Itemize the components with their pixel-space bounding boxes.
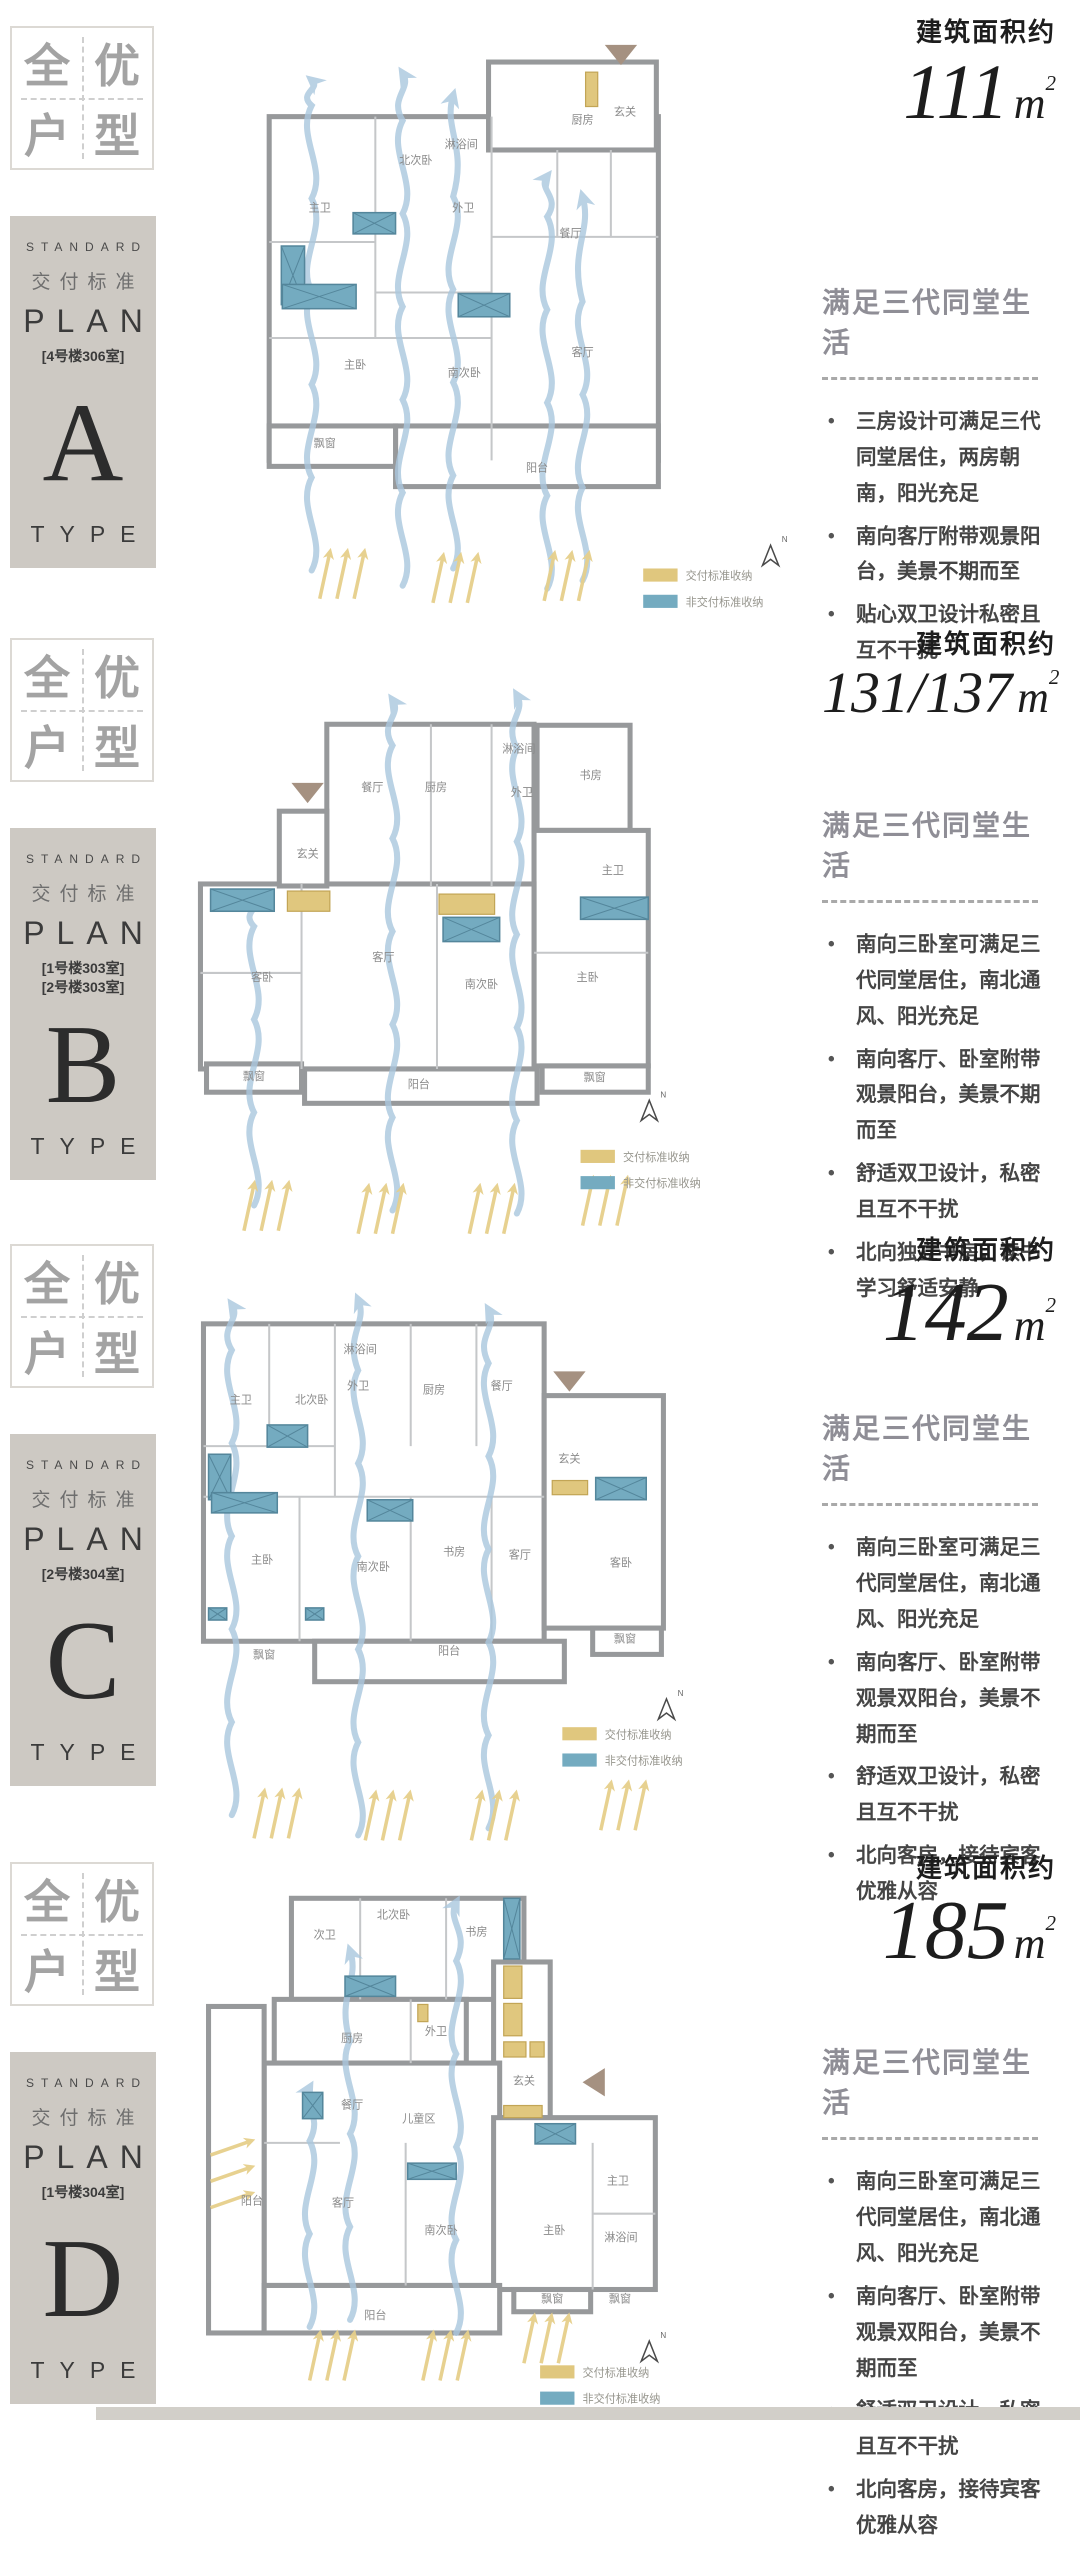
standard-label: STANDARD xyxy=(19,240,147,254)
floor-plan-svg: 次卫北次卧书房厨房外卫玄关餐厅儿童区客厅南次卧主卧主卫淋浴间阳台阳台飘窗飘窗N交… xyxy=(158,1836,810,2551)
section-headline: 满足三代同堂生活 xyxy=(822,2041,1056,2121)
info-column: 建筑面积约 185m2 满足三代同堂生活 南向三卧室可满足三代同堂居住，南北通风… xyxy=(810,1836,1080,2551)
type-label: TYPE xyxy=(15,1133,150,1160)
room-label: 阳台 xyxy=(438,1643,460,1657)
room-number: [2号楼304室] xyxy=(42,1565,124,1584)
area-block: 建筑面积约 111m2 xyxy=(822,12,1056,133)
room-label: 主卧 xyxy=(344,358,366,371)
plan-label: PLAN xyxy=(11,915,155,952)
legend-not-delivered-label: 非交付标准收纳 xyxy=(583,2392,661,2406)
area-number: 142 xyxy=(883,1266,1009,1359)
type-letter: C xyxy=(46,1605,121,1717)
floor-plan-svg: 餐厅厨房淋浴间外卫书房玄关客卧客厅南次卧主卧主卫阳台飘窗飘窗N交付标准收纳非交付… xyxy=(158,612,810,1314)
badge-char: 户 xyxy=(12,710,82,780)
left-column: 全优户型 STANDARD 交付标准 PLAN [1号楼303室][2号楼303… xyxy=(0,612,158,1314)
room-label: 淋浴间 xyxy=(604,2231,637,2244)
room-number: [1号楼303室] xyxy=(42,959,124,978)
delivery-standard-label: 交付标准 xyxy=(22,2103,143,2130)
dashed-divider xyxy=(822,377,1038,380)
delivery-standard-label: 交付标准 xyxy=(22,1485,143,1512)
svg-text:N: N xyxy=(660,1090,666,1099)
floor-plan-area: 主卫北次卧淋浴间外卫厨房餐厅玄关主卧南次卧书房客厅客卧阳台飘窗飘窗N交付标准收纳… xyxy=(158,1218,810,1917)
room-label: 阳台 xyxy=(241,2194,263,2208)
room-number: [4号楼306室] xyxy=(42,347,124,366)
entry-marker-icon xyxy=(291,783,323,803)
section-headline: 满足三代同堂生活 xyxy=(822,1407,1056,1487)
area-block: 建筑面积约 142m2 xyxy=(822,1230,1056,1357)
svg-text:N: N xyxy=(782,535,788,544)
north-arrow-icon: N xyxy=(658,1689,683,1719)
room-label: 玄关 xyxy=(513,2073,535,2087)
feature-bullet: 舒适双卫设计，私密且互不干扰 xyxy=(822,1759,1056,1831)
room-label: 主卫 xyxy=(309,202,331,215)
unit-section-B: 全优户型 STANDARD 交付标准 PLAN [1号楼303室][2号楼303… xyxy=(0,612,1080,1218)
room-label: 餐厅 xyxy=(491,1379,513,1393)
plan-standard-block: STANDARD 交付标准 PLAN [4号楼306室] A TYPE xyxy=(10,216,156,568)
room-label: 餐厅 xyxy=(361,780,383,794)
room-label: 北次卧 xyxy=(399,153,432,167)
room-label: 阳台 xyxy=(526,460,548,474)
room-label: 飘窗 xyxy=(541,2292,563,2306)
room-label: 书房 xyxy=(580,769,602,782)
feature-bullet: 南向客厅、卧室附带观景双阳台，美景不期而至 xyxy=(822,2279,1056,2387)
info-column: 建筑面积约 142m2 满足三代同堂生活 南向三卧室可满足三代同堂居住，南北通风… xyxy=(810,1218,1080,1917)
room-label: 淋浴间 xyxy=(502,743,535,756)
legend-not-delivered-label: 非交付标准收纳 xyxy=(623,1176,701,1190)
standard-label: STANDARD xyxy=(19,852,147,866)
feature-bullet: 北向客房，接待宾客优雅从容 xyxy=(822,2472,1056,2544)
room-number: [2号楼303室] xyxy=(42,978,124,997)
floor-plan-area: 次卫北次卧书房厨房外卫玄关餐厅儿童区客厅南次卧主卧主卫淋浴间阳台阳台飘窗飘窗N交… xyxy=(158,1836,810,2551)
room-label: 玄关 xyxy=(614,105,636,119)
room-label: 厨房 xyxy=(423,1384,445,1397)
legend-delivered-swatch xyxy=(562,1727,596,1740)
type-label: TYPE xyxy=(15,1739,150,1766)
north-arrow-icon: N xyxy=(641,2331,666,2361)
floor-plan-area: 餐厅厨房淋浴间外卫书房玄关客卧客厅南次卧主卧主卫阳台飘窗飘窗N交付标准收纳非交付… xyxy=(158,612,810,1314)
badge-char: 优 xyxy=(82,1864,152,1934)
area-value: 142m2 xyxy=(822,1269,1056,1357)
room-label: 主卧 xyxy=(577,971,599,984)
room-label: 北次卧 xyxy=(295,1393,328,1407)
dashed-divider xyxy=(822,2137,1038,2140)
plan-label: PLAN xyxy=(11,303,155,340)
feature-bullet: 南向三卧室可满足三代同堂居住，南北通风、阳光充足 xyxy=(822,2164,1056,2272)
feature-bullet: 舒适双卫设计，私密且互不干扰 xyxy=(822,2393,1056,2465)
badge-char: 优 xyxy=(82,28,152,98)
area-block: 建筑面积约 131/137m2 xyxy=(822,624,1056,724)
room-label: 外卫 xyxy=(452,202,474,215)
room-label: 餐厅 xyxy=(559,226,581,240)
badge-char: 户 xyxy=(12,1934,82,2004)
badge-char: 型 xyxy=(82,710,152,780)
section-headline: 满足三代同堂生活 xyxy=(822,804,1056,884)
room-label: 南次卧 xyxy=(448,365,481,379)
room-label: 厨房 xyxy=(341,2032,363,2045)
plan-standard-block: STANDARD 交付标准 PLAN [1号楼304室] D TYPE xyxy=(10,2052,156,2404)
plan-label: PLAN xyxy=(11,2139,155,2176)
quality-badge: 全优户型 xyxy=(10,1862,154,2006)
type-letter: D xyxy=(43,2223,124,2335)
north-arrow-icon: N xyxy=(641,1090,666,1120)
feature-bullet: 三房设计可满足三代同堂居住，两房朝南，阳光充足 xyxy=(822,404,1056,512)
room-label: 飘窗 xyxy=(584,1070,606,1084)
dashed-divider xyxy=(822,1503,1038,1506)
room-number-list: [1号楼303室][2号楼303室] xyxy=(42,959,124,997)
plan-standard-block: STANDARD 交付标准 PLAN [2号楼304室] C TYPE xyxy=(10,1434,156,1786)
floor-plan-svg: 主卫北次卧淋浴间外卫厨房餐厅玄关主卧南次卧书房客厅客卧阳台飘窗飘窗N交付标准收纳… xyxy=(158,1218,810,1917)
room-label: 客卧 xyxy=(610,1555,632,1569)
room-label: 飘窗 xyxy=(243,1069,265,1083)
room-label: 餐厅 xyxy=(341,2098,363,2112)
unit-section-D: 全优户型 STANDARD 交付标准 PLAN [1号楼304室] D TYPE… xyxy=(0,1836,1080,2420)
svg-text:N: N xyxy=(678,1689,684,1698)
legend-delivered-label: 交付标准收纳 xyxy=(583,2365,650,2379)
room-number-list: [2号楼304室] xyxy=(42,1565,124,1584)
badge-char: 优 xyxy=(82,640,152,710)
plan-legend: 交付标准收纳非交付标准收纳 xyxy=(562,1727,682,1767)
plan-standard-block: STANDARD 交付标准 PLAN [1号楼303室][2号楼303室] B … xyxy=(10,828,156,1180)
room-label: 阳台 xyxy=(364,2308,386,2322)
delivery-standard-label: 交付标准 xyxy=(22,267,143,294)
legend-not-delivered-swatch xyxy=(540,2392,574,2405)
feature-bullet-list: 南向三卧室可满足三代同堂居住，南北通风、阳光充足南向客厅、卧室附带观景双阳台，美… xyxy=(822,2164,1056,2544)
room-label: 儿童区 xyxy=(402,2112,435,2126)
plan-legend: 交付标准收纳非交付标准收纳 xyxy=(540,2365,660,2405)
badge-char: 型 xyxy=(82,1316,152,1386)
room-label: 主卫 xyxy=(602,864,624,877)
area-unit-sup: 2 xyxy=(1046,1293,1057,1317)
room-label: 北次卧 xyxy=(377,1908,410,1922)
dashed-divider xyxy=(822,900,1038,903)
room-label: 飘窗 xyxy=(314,436,336,450)
legend-delivered-label: 交付标准收纳 xyxy=(623,1150,690,1164)
area-unit: m xyxy=(1017,673,1049,722)
unit-section-A: 全优户型 STANDARD 交付标准 PLAN [4号楼306室] A TYPE… xyxy=(0,0,1080,612)
area-unit-sup: 2 xyxy=(1046,1911,1057,1935)
legend-delivered-swatch xyxy=(643,568,677,581)
area-number: 185 xyxy=(883,1884,1009,1977)
north-arrow-icon: N xyxy=(762,535,787,565)
floor-plan-svg: 主卫北次卧淋浴间外卫厨房玄关餐厅主卧南次卧客厅阳台飘窗N交付标准收纳非交付标准收… xyxy=(158,0,810,676)
room-label: 南次卧 xyxy=(357,1560,390,1574)
left-column: 全优户型 STANDARD 交付标准 PLAN [1号楼304室] D TYPE xyxy=(0,1836,158,2551)
room-label: 阳台 xyxy=(408,1077,430,1091)
room-label: 玄关 xyxy=(296,847,318,861)
section-headline: 满足三代同堂生活 xyxy=(822,281,1056,361)
standard-label: STANDARD xyxy=(19,1458,147,1472)
area-label: 建筑面积约 xyxy=(822,624,1056,661)
room-label: 厨房 xyxy=(571,114,593,127)
entry-marker-icon xyxy=(583,2068,605,2096)
quality-badge: 全优户型 xyxy=(10,26,154,170)
standard-label: STANDARD xyxy=(19,2076,147,2090)
room-number-list: [4号楼306室] xyxy=(42,347,124,366)
entry-marker-icon xyxy=(553,1371,585,1391)
area-unit: m xyxy=(1014,79,1046,128)
type-letter: A xyxy=(43,387,124,499)
legend-delivered-swatch xyxy=(581,1150,615,1163)
badge-char: 优 xyxy=(82,1246,152,1316)
room-label: 飘窗 xyxy=(253,1647,275,1661)
legend-not-delivered-label: 非交付标准收纳 xyxy=(605,1754,683,1768)
unit-section-C: 全优户型 STANDARD 交付标准 PLAN [2号楼304室] C TYPE… xyxy=(0,1218,1080,1836)
area-value: 185m2 xyxy=(822,1887,1056,1975)
room-label: 书房 xyxy=(443,1545,465,1558)
area-label: 建筑面积约 xyxy=(822,1230,1056,1267)
info-column: 建筑面积约 131/137m2 满足三代同堂生活 南向三卧室可满足三代同堂居住，… xyxy=(810,612,1080,1314)
bottom-gray-strip xyxy=(96,2407,1080,2420)
info-column: 建筑面积约 111m2 满足三代同堂生活 三房设计可满足三代同堂居住，两房朝南，… xyxy=(810,0,1080,676)
room-label: 主卫 xyxy=(607,2174,629,2187)
area-unit-sup: 2 xyxy=(1049,665,1060,689)
feature-bullet: 南向三卧室可满足三代同堂居住，南北通风、阳光充足 xyxy=(822,1530,1056,1638)
room-label: 客厅 xyxy=(332,2196,354,2210)
area-block: 建筑面积约 185m2 xyxy=(822,1848,1056,1975)
feature-bullet: 南向客厅、卧室附带观景阳台，美景不期而至 xyxy=(822,1042,1056,1150)
brochure-page: 全优户型 STANDARD 交付标准 PLAN [4号楼306室] A TYPE… xyxy=(0,0,1080,2420)
room-number-list: [1号楼304室] xyxy=(42,2183,124,2202)
delivery-standard-label: 交付标准 xyxy=(22,879,143,906)
quality-badge: 全优户型 xyxy=(10,1244,154,1388)
room-label: 外卫 xyxy=(511,786,533,799)
area-number: 131/137 xyxy=(822,660,1012,725)
room-label: 外卫 xyxy=(347,1380,369,1393)
room-label: 南次卧 xyxy=(424,2223,457,2237)
plan-legend: 交付标准收纳非交付标准收纳 xyxy=(581,1150,701,1190)
badge-char: 全 xyxy=(12,1864,82,1934)
type-label: TYPE xyxy=(15,521,150,548)
area-number: 111 xyxy=(903,48,1008,135)
room-label: 客厅 xyxy=(509,1547,531,1561)
plan-legend: 交付标准收纳非交付标准收纳 xyxy=(643,568,763,608)
area-unit-sup: 2 xyxy=(1046,71,1057,95)
area-unit: m xyxy=(1014,1301,1046,1350)
svg-text:N: N xyxy=(660,2331,666,2340)
badge-char: 户 xyxy=(12,98,82,168)
feature-bullet: 南向客厅、卧室附带观景双阳台，美景不期而至 xyxy=(822,1645,1056,1753)
room-label: 客厅 xyxy=(571,345,593,359)
legend-not-delivered-swatch xyxy=(643,595,677,608)
room-label: 南次卧 xyxy=(465,977,498,991)
badge-char: 全 xyxy=(12,640,82,710)
room-label: 淋浴间 xyxy=(445,138,478,151)
room-label: 淋浴间 xyxy=(344,1343,377,1356)
type-label: TYPE xyxy=(15,2357,150,2384)
legend-delivered-swatch xyxy=(540,2365,574,2378)
area-value: 131/137m2 xyxy=(822,663,1056,724)
room-label: 厨房 xyxy=(425,781,447,794)
room-label: 飘窗 xyxy=(614,1631,636,1645)
plan-label: PLAN xyxy=(11,1521,155,1558)
feature-bullet: 南向三卧室可满足三代同堂居住，南北通风、阳光充足 xyxy=(822,927,1056,1035)
room-label: 主卫 xyxy=(230,1394,252,1407)
room-label: 主卧 xyxy=(251,1553,273,1566)
area-label: 建筑面积约 xyxy=(822,1848,1056,1885)
room-label: 飘窗 xyxy=(609,2292,631,2306)
wall-outlines xyxy=(269,62,658,487)
room-label: 客厅 xyxy=(372,950,394,964)
badge-char: 型 xyxy=(82,1934,152,2004)
badge-char: 户 xyxy=(12,1316,82,1386)
legend-not-delivered-swatch xyxy=(581,1176,615,1189)
legend-delivered-label: 交付标准收纳 xyxy=(605,1727,672,1741)
legend-delivered-label: 交付标准收纳 xyxy=(686,569,753,583)
room-label: 次卫 xyxy=(314,1928,336,1942)
quality-badge: 全优户型 xyxy=(10,638,154,782)
legend-not-delivered-label: 非交付标准收纳 xyxy=(686,595,764,609)
sunlight-arrows xyxy=(254,1784,645,1841)
feature-bullet: 南向客厅附带观景阳台，美景不期而至 xyxy=(822,519,1056,591)
badge-char: 全 xyxy=(12,28,82,98)
left-column: 全优户型 STANDARD 交付标准 PLAN [4号楼306室] A TYPE xyxy=(0,0,158,676)
room-number: [1号楼304室] xyxy=(42,2183,124,2202)
badge-char: 型 xyxy=(82,98,152,168)
floor-plan-area: 主卫北次卧淋浴间外卫厨房玄关餐厅主卧南次卧客厅阳台飘窗N交付标准收纳非交付标准收… xyxy=(158,0,810,676)
area-label: 建筑面积约 xyxy=(822,12,1056,49)
badge-char: 全 xyxy=(12,1246,82,1316)
legend-not-delivered-swatch xyxy=(562,1753,596,1766)
room-label: 书房 xyxy=(465,1926,487,1939)
area-value: 111m2 xyxy=(822,51,1056,133)
left-column: 全优户型 STANDARD 交付标准 PLAN [2号楼304室] C TYPE xyxy=(0,1218,158,1917)
area-unit: m xyxy=(1014,1919,1046,1968)
type-letter: B xyxy=(46,1009,121,1121)
room-label: 玄关 xyxy=(558,1451,580,1465)
room-label: 外卫 xyxy=(425,2025,447,2038)
room-label: 主卧 xyxy=(543,2224,565,2237)
room-label: 客卧 xyxy=(251,970,273,984)
